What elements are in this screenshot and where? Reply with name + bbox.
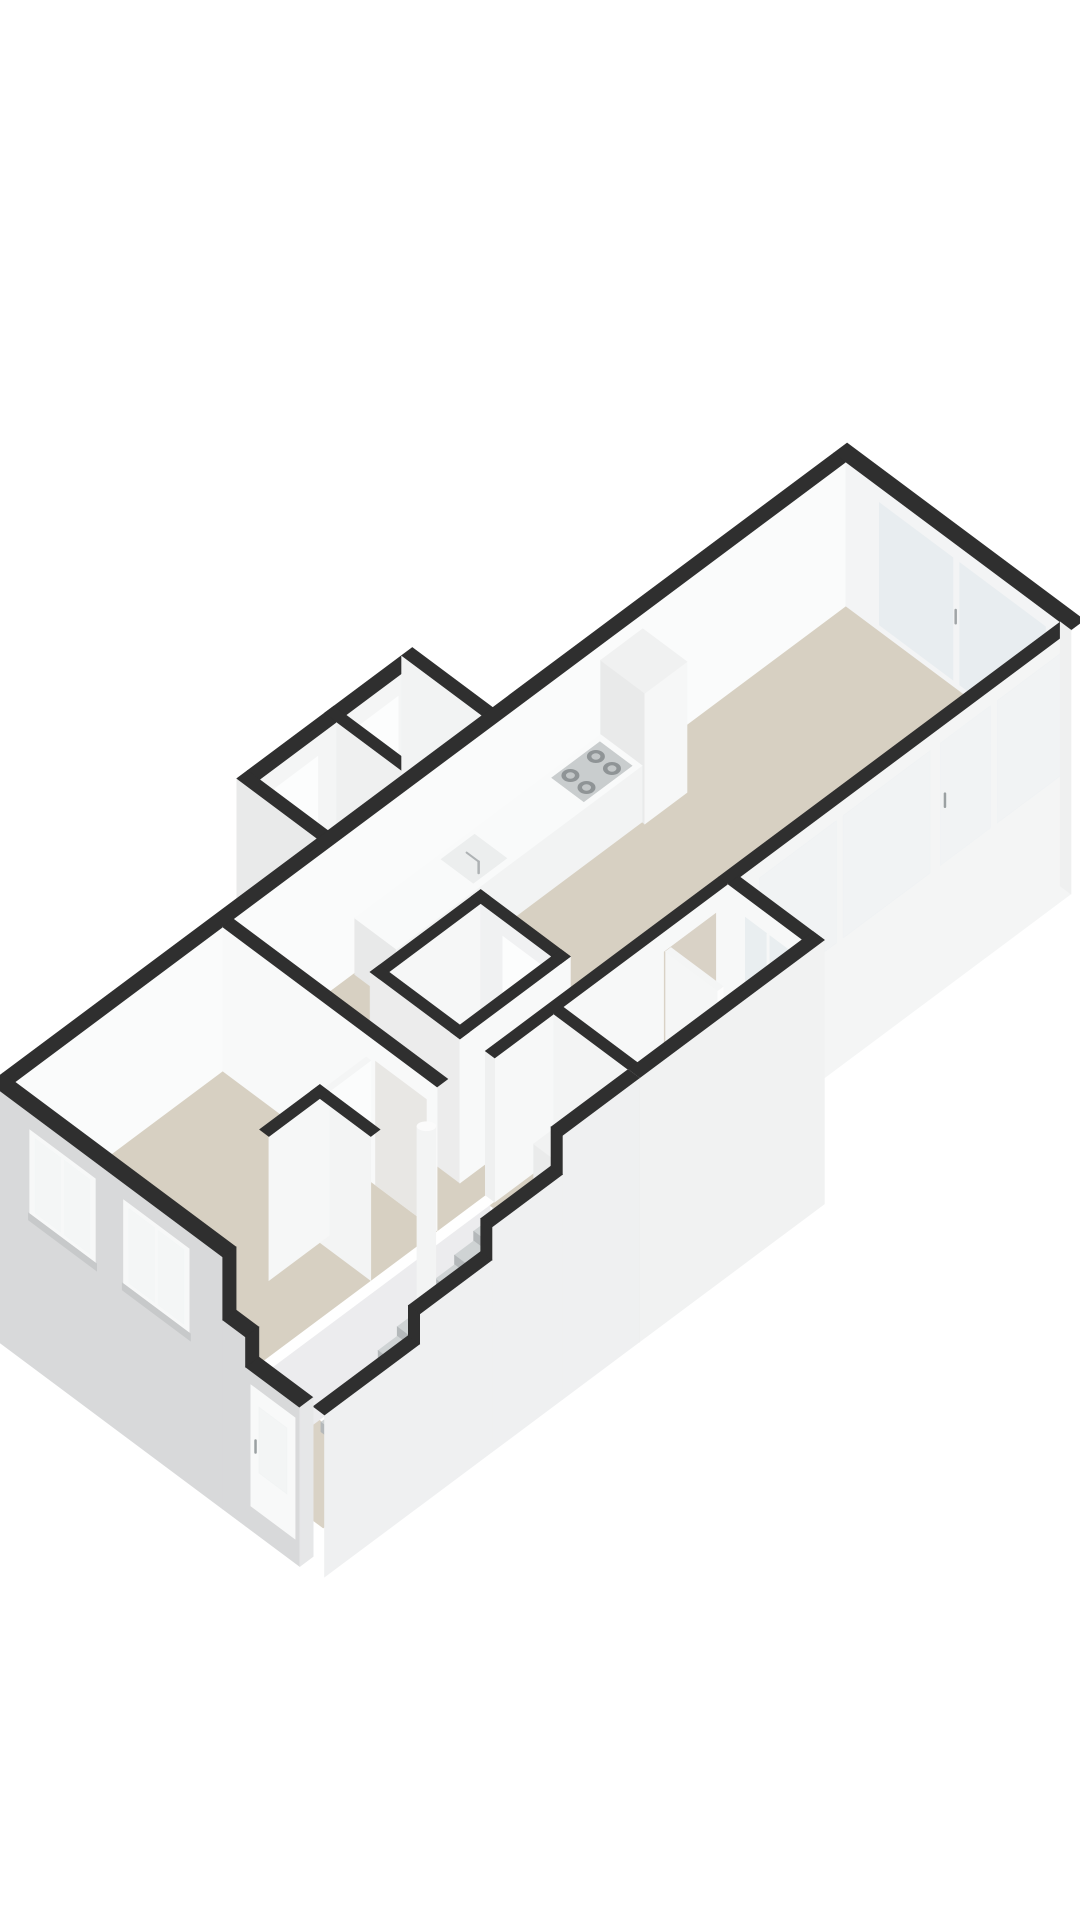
facade-step-face-1 [223,1247,236,1320]
hob-burners-center [582,784,591,790]
cap-step-face-1 [551,1127,562,1175]
e-corner-band [1060,622,1071,894]
column-pipe [417,1126,437,1307]
hob-burners-center [566,772,575,778]
hob-burners-center [591,753,600,759]
hob-burners-center [607,765,616,771]
column-pipe-top [417,1121,437,1131]
facade-mid [223,1320,246,1526]
floorplan-page [0,0,1080,1920]
spine-end-band [485,1051,494,1202]
floorplan-3d-render [0,0,1080,1920]
facade-end-band [300,1398,313,1567]
